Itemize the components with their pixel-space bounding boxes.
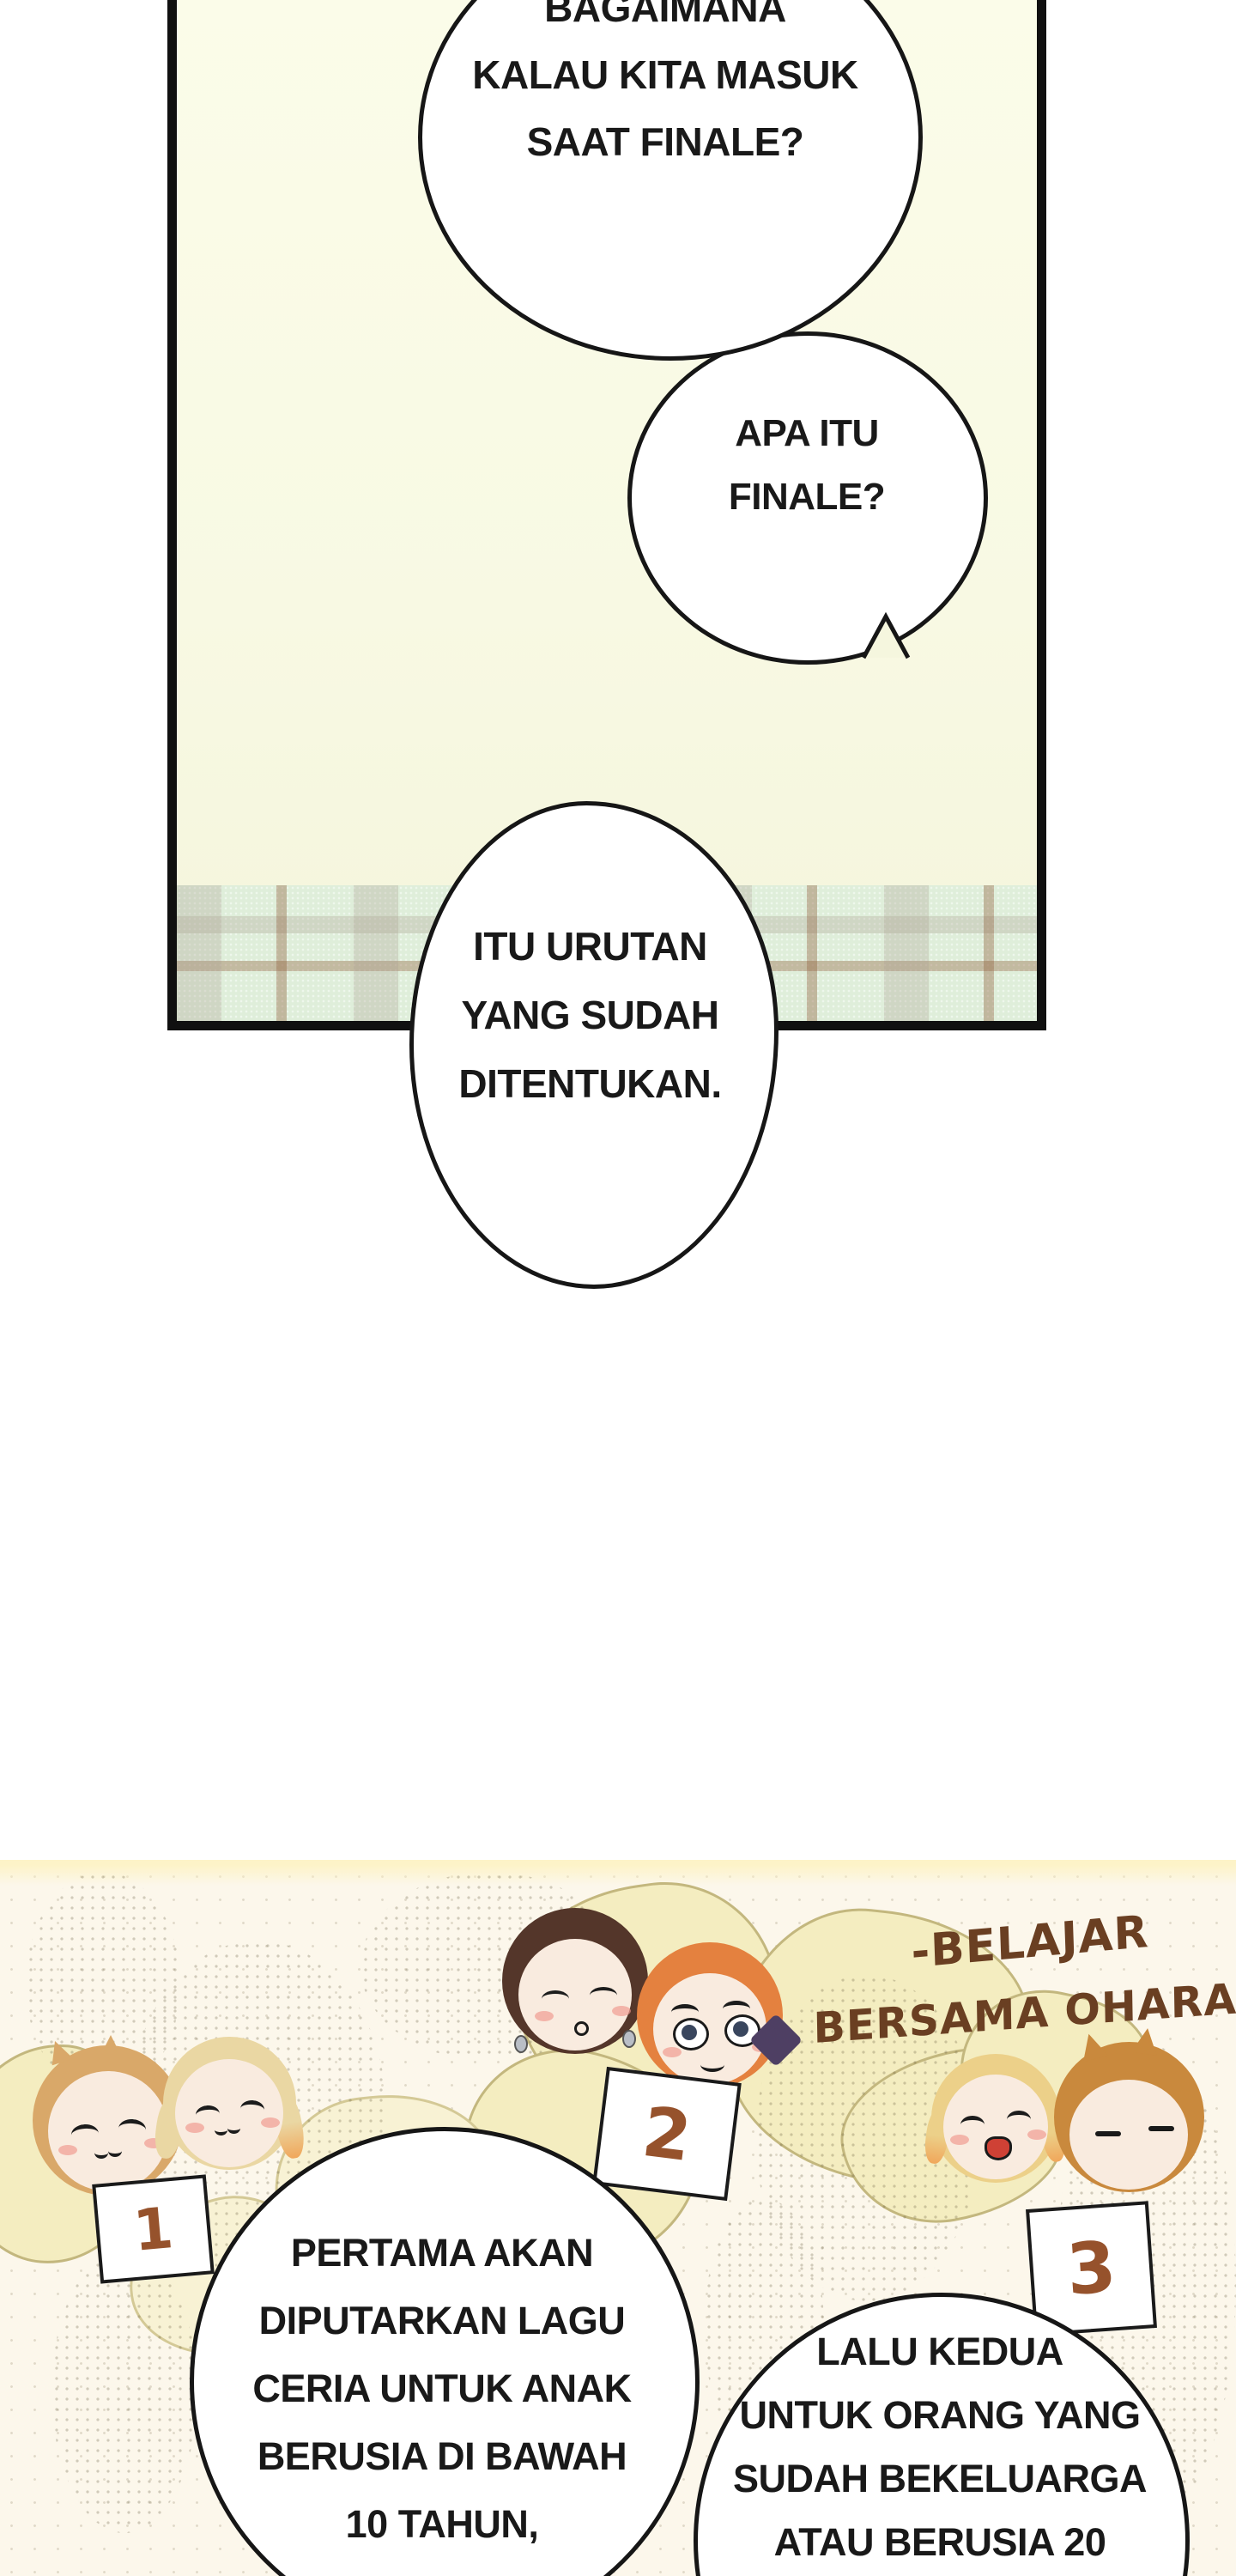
- speech-bubble-question-text: APA ITU FINALE?: [639, 402, 974, 529]
- sign-number: 2: [639, 2091, 696, 2176]
- cat-mouth: [108, 2145, 122, 2157]
- mouth: [700, 2057, 724, 2072]
- speech-line: LALU KEDUA: [717, 2320, 1163, 2384]
- iris: [682, 2025, 697, 2040]
- blush: [261, 2117, 280, 2128]
- speech-line: APA ITU: [639, 402, 974, 465]
- speech-line: DIPUTARKAN LAGU: [215, 2287, 669, 2354]
- speech-line: ATAU BERUSIA 20: [717, 2511, 1163, 2574]
- speech-line: 10 TAHUN,: [215, 2490, 669, 2558]
- character-head-blonde-girl: [931, 2054, 1060, 2183]
- character-face: [943, 2075, 1048, 2179]
- number-sign-1: 1: [92, 2174, 215, 2283]
- hair-spike: [100, 2035, 122, 2057]
- earring: [622, 2030, 636, 2048]
- speech-line: PERTAMA AKAN: [215, 2219, 669, 2287]
- cat-mouth: [227, 2123, 240, 2134]
- character-head-brunette: [502, 1908, 648, 2054]
- closed-eye: [960, 2116, 985, 2134]
- blush: [535, 2011, 554, 2021]
- narrow-eye: [1095, 2131, 1121, 2136]
- speech-line: FINALE?: [639, 465, 974, 529]
- speech-line: UNTUK ORANG YANG: [717, 2384, 1163, 2447]
- speech-bubble-second-text: LALU KEDUA UNTUK ORANG YANG SUDAH BEKELU…: [717, 2320, 1163, 2574]
- iris: [733, 2021, 748, 2037]
- stipple-texture: [51, 2250, 197, 2533]
- narrow-eye: [1148, 2126, 1174, 2131]
- cat-mouth: [94, 2147, 108, 2159]
- sign-number: 1: [130, 2195, 175, 2264]
- character-face: [175, 2059, 283, 2167]
- sign-number: 3: [1064, 2227, 1119, 2312]
- comic-page: BAGAIMANA KALAU KITA MASUK SAAT FINALE? …: [0, 0, 1236, 2576]
- omake-top-gradient: [0, 1860, 1236, 1886]
- character-head-amber-guy: [1054, 2042, 1204, 2192]
- closed-eye: [542, 1990, 569, 2008]
- cat-mouth: [215, 2124, 227, 2136]
- open-eye: [673, 2018, 709, 2050]
- speech-line: CERIA UNTUK ANAK: [215, 2354, 669, 2422]
- open-mouth: [985, 2136, 1012, 2160]
- hair-spike: [1131, 2026, 1160, 2056]
- closed-eye: [590, 1987, 617, 2004]
- speech-line: DITENTUKAN.: [421, 1049, 760, 1118]
- blush: [663, 2047, 682, 2057]
- character-face: [48, 2071, 168, 2191]
- speech-line: KALAU KITA MASUK: [463, 41, 867, 108]
- speech-bubble-notch: [861, 611, 914, 661]
- speech-line: ITU URUTAN: [421, 912, 760, 981]
- speech-line: BERUSIA DI BAWAH: [215, 2422, 669, 2490]
- character-face: [1069, 2080, 1188, 2190]
- blush: [58, 2145, 77, 2155]
- blush: [1027, 2129, 1046, 2140]
- blush: [612, 2006, 631, 2016]
- mouth: [574, 2021, 589, 2036]
- speech-bubble-top-text: BAGAIMANA KALAU KITA MASUK SAAT FINALE?: [463, 0, 867, 175]
- closed-eye: [1007, 2111, 1031, 2129]
- blush: [185, 2123, 204, 2133]
- character-head-ginger: [637, 1942, 783, 2088]
- number-sign-2: 2: [592, 2067, 742, 2201]
- speech-bubble-answer-text: ITU URUTAN YANG SUDAH DITENTUKAN.: [421, 912, 760, 1118]
- speech-bubble-first-text: PERTAMA AKAN DIPUTARKAN LAGU CERIA UNTUK…: [215, 2219, 669, 2558]
- speech-line: YANG SUDAH: [421, 981, 760, 1049]
- speech-line: SAAT FINALE?: [463, 108, 867, 175]
- earring: [514, 2035, 528, 2053]
- character-head-blond-right: [163, 2037, 296, 2170]
- blush: [950, 2135, 969, 2145]
- speech-line: BAGAIMANA: [463, 0, 867, 41]
- speech-line: SUDAH BEKELUARGA: [717, 2447, 1163, 2511]
